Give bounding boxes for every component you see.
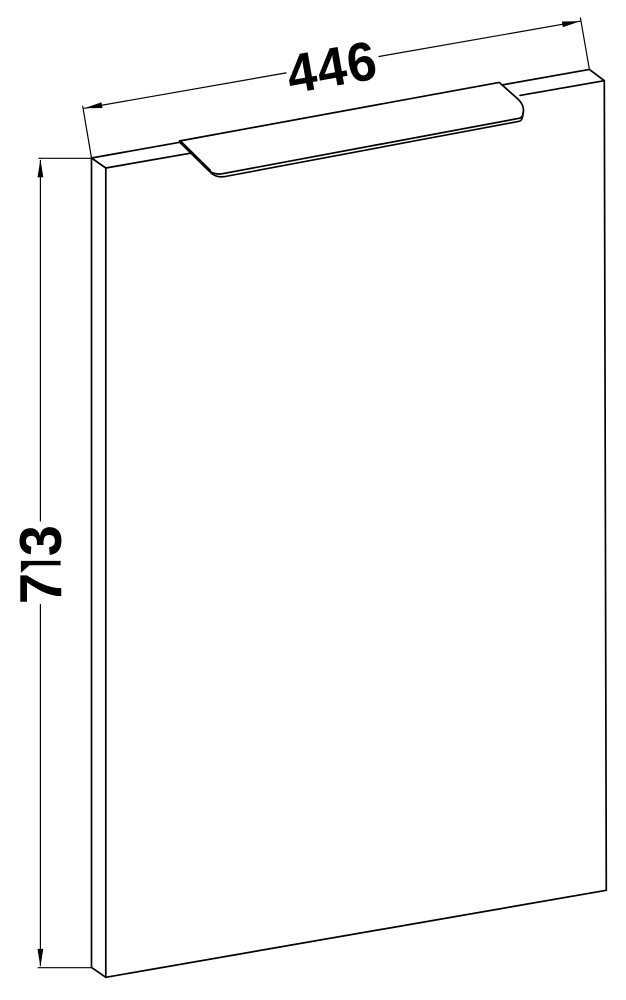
svg-text:3: 3 (9, 525, 75, 556)
svg-text:7: 7 (9, 573, 75, 604)
